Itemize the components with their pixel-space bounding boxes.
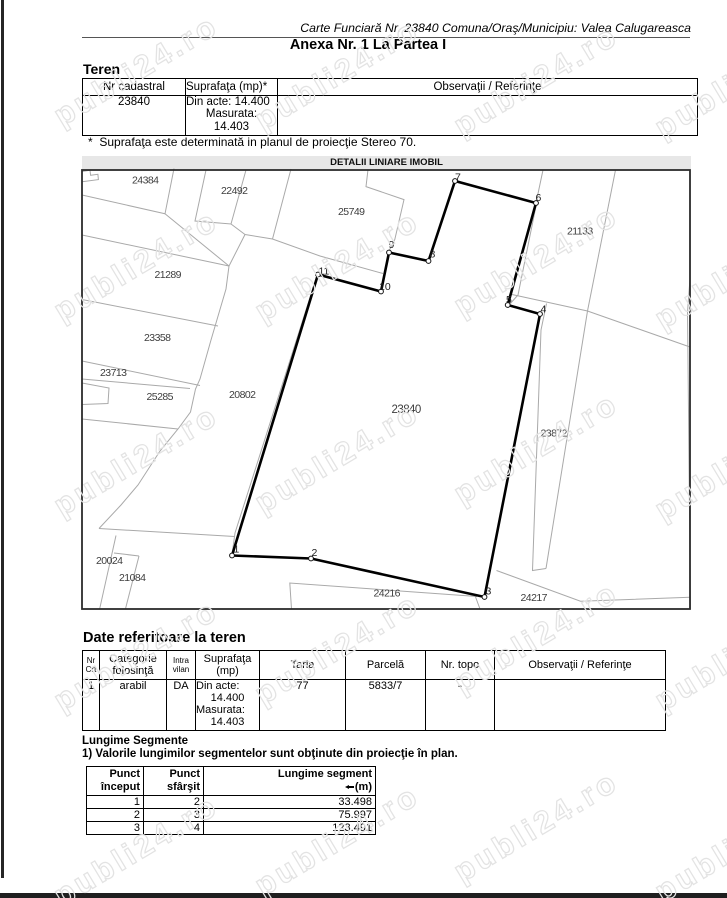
svg-text:9: 9 xyxy=(389,239,395,251)
svg-text:25285: 25285 xyxy=(147,391,174,403)
svg-text:23840: 23840 xyxy=(392,404,421,416)
svg-text:8: 8 xyxy=(430,249,436,261)
svg-text:24384: 24384 xyxy=(132,175,159,187)
svg-text:2: 2 xyxy=(312,547,318,559)
svg-text:7: 7 xyxy=(455,172,461,184)
svg-text:4: 4 xyxy=(541,304,547,316)
svg-text:22492: 22492 xyxy=(221,185,248,197)
svg-text:21133: 21133 xyxy=(567,226,593,238)
svg-text:23358: 23358 xyxy=(144,332,171,344)
svg-text:5: 5 xyxy=(506,294,512,306)
svg-text:3: 3 xyxy=(486,586,492,598)
svg-text:24216: 24216 xyxy=(374,588,401,600)
svg-text:21289: 21289 xyxy=(155,269,182,281)
svg-text:20802: 20802 xyxy=(229,389,256,401)
svg-text:6: 6 xyxy=(536,192,542,204)
svg-text:21084: 21084 xyxy=(119,572,146,584)
svg-text:20024: 20024 xyxy=(96,555,123,567)
svg-text:24217: 24217 xyxy=(521,592,548,604)
svg-text:25749: 25749 xyxy=(338,206,365,218)
svg-text:23713: 23713 xyxy=(100,367,127,379)
svg-text:10: 10 xyxy=(379,281,391,293)
svg-text:1: 1 xyxy=(234,544,240,556)
svg-text:11: 11 xyxy=(319,266,330,278)
svg-text:23872: 23872 xyxy=(541,428,568,440)
